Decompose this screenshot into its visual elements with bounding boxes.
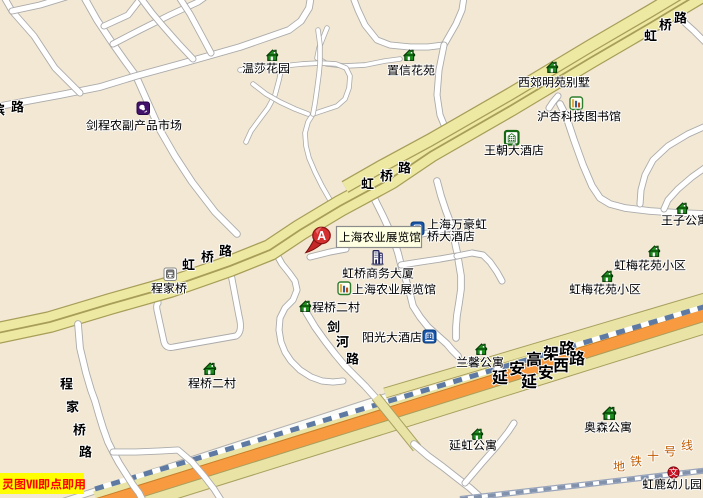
svg-text:A: A [317,229,326,243]
